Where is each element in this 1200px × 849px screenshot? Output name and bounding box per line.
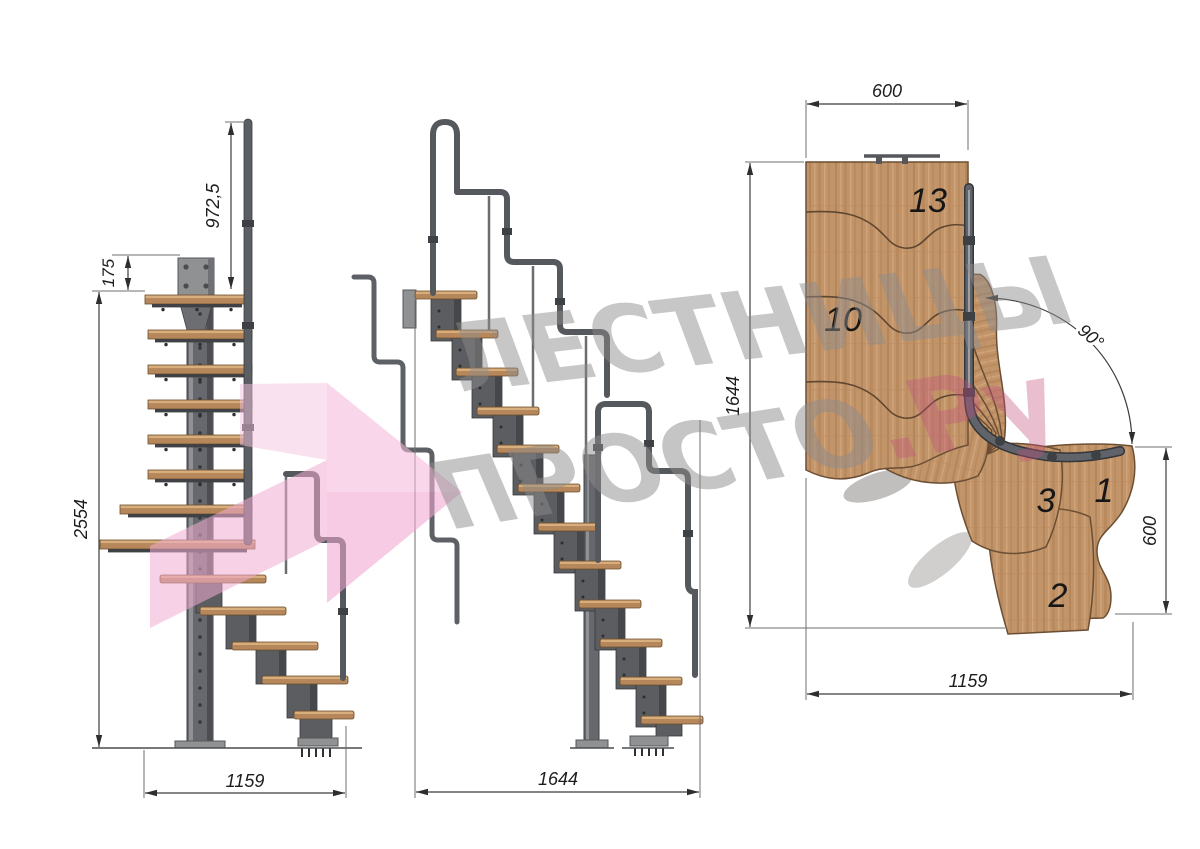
staircase-drawing: 2554 175 972,5 1159 xyxy=(0,0,1200,849)
label-step-3: 3 xyxy=(1037,482,1056,520)
top-handrail-post xyxy=(242,119,254,545)
dim-total-height: 2554 xyxy=(71,499,91,540)
label-step-2: 2 xyxy=(1048,577,1068,615)
label-step-1: 1 xyxy=(1095,472,1114,510)
bottom-tread xyxy=(630,716,703,756)
dim-rail-height: 972,5 xyxy=(203,182,223,228)
dim-plate-offset: 175 xyxy=(99,258,118,287)
dim-platform-width: 600 xyxy=(872,81,902,101)
anchor-bolts xyxy=(302,748,330,757)
dim-side-length: 1644 xyxy=(538,769,578,789)
column-base-plate xyxy=(175,741,225,748)
wall-bracket xyxy=(403,290,416,328)
dim-front-width: 1159 xyxy=(226,771,265,791)
drawing-canvas: 2554 175 972,5 1159 xyxy=(0,0,1200,849)
dim-plan-width: 1159 xyxy=(949,671,988,691)
dim-exit-width: 600 xyxy=(1140,516,1160,546)
label-step-13: 13 xyxy=(909,182,947,220)
flight-base-plate xyxy=(298,738,338,746)
